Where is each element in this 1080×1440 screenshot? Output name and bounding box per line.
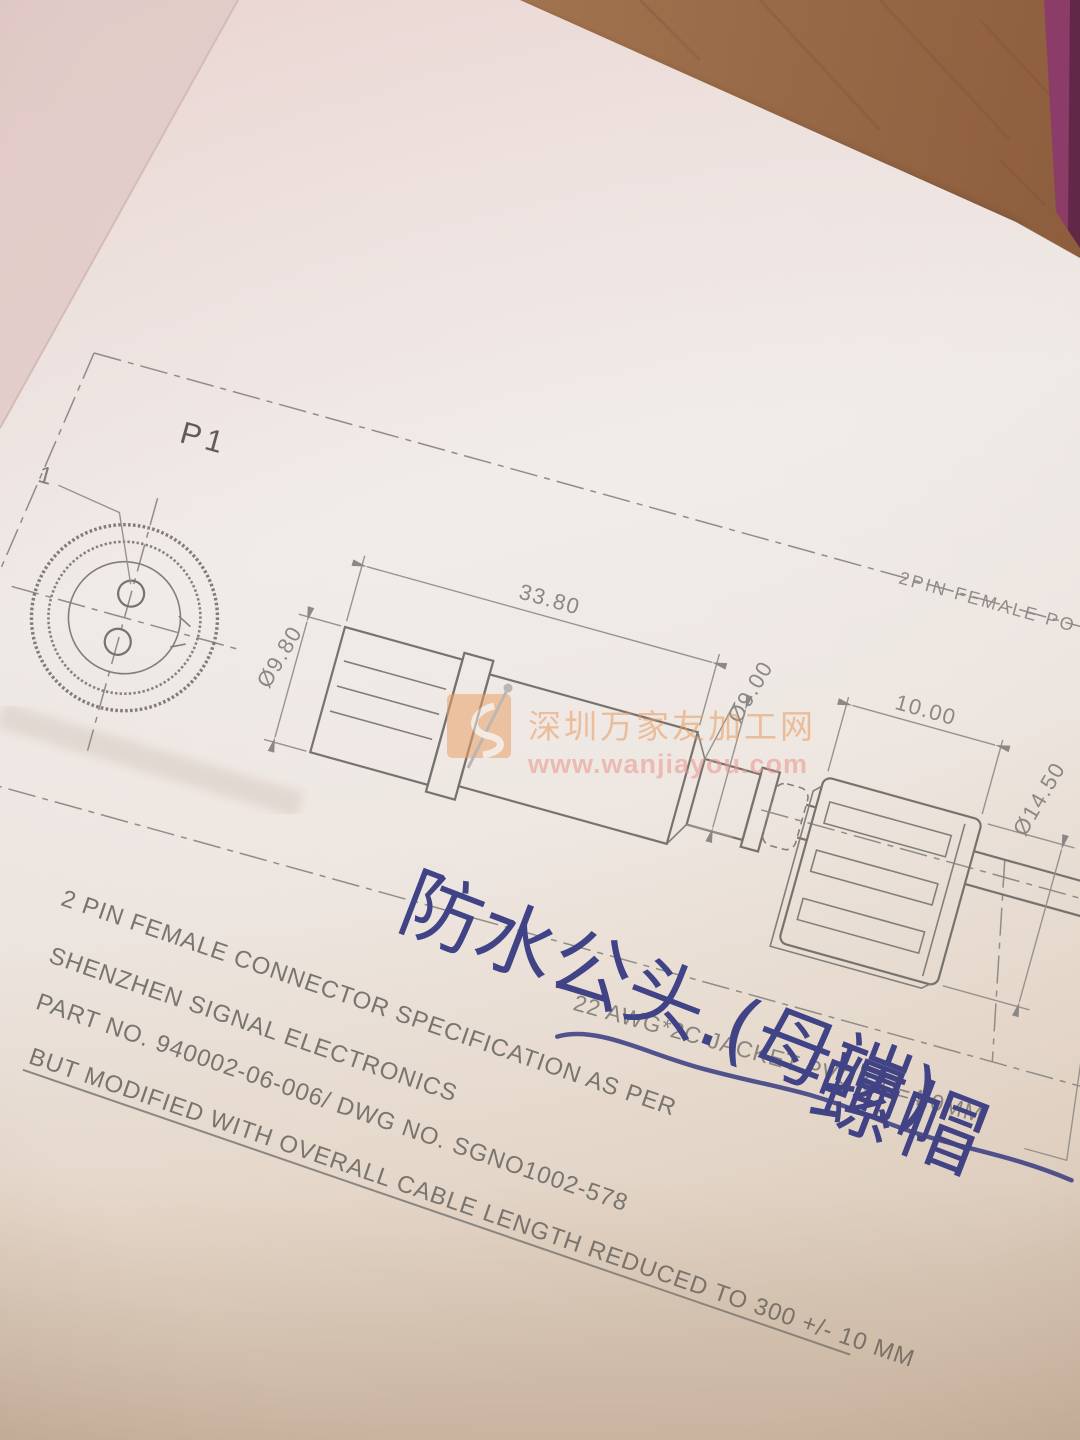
vignette (0, 0, 1080, 1440)
photo-of-spec-sheet: P1 2PIN FEMALE PO 1 (0, 0, 1080, 1440)
